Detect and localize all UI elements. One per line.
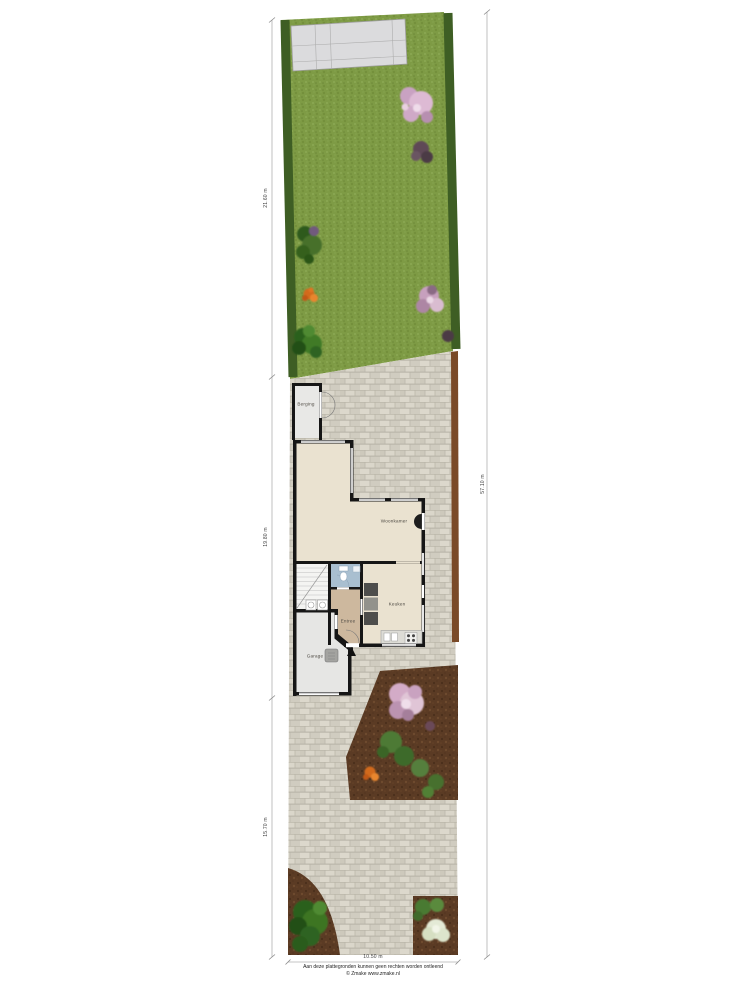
- dimension-plot-width: 10.50 m: [363, 954, 382, 960]
- site-plan-drawing: [0, 0, 750, 1000]
- berging-floor: [295, 385, 319, 438]
- berging-door: [319, 392, 321, 418]
- entree-kitchen-door: [361, 599, 363, 615]
- site-plan-canvas: Berging Woonkamer Keuken Entree Garage 2…: [0, 0, 750, 1000]
- stove-icon: [405, 633, 417, 644]
- room-label-entree: Entree: [341, 619, 356, 624]
- utility-box: [325, 649, 338, 662]
- terrace-slabs: [291, 19, 407, 71]
- fence-right: [451, 351, 459, 642]
- living-room-side-door: [422, 513, 425, 530]
- dimension-total-depth: 57.10 m: [480, 474, 486, 493]
- dimension-garden-depth: 21.60 m: [263, 188, 269, 207]
- kitchen-opening: [396, 561, 420, 564]
- room-label-garage: Garage: [307, 654, 324, 659]
- front-door: [346, 643, 359, 647]
- footer-disclaimer: Aan deze plattegronden kunnen geen recht…: [303, 964, 443, 971]
- room-label-woonkamer: Woonkamer: [381, 519, 407, 524]
- room-label-keuken: Keuken: [389, 602, 406, 607]
- toilet-door: [337, 587, 349, 589]
- entree-garage-door: [335, 615, 338, 629]
- footer-credit: © Zmake www.zmake.nl: [303, 971, 443, 978]
- dimension-frontyard-depth: 15.70 m: [263, 817, 269, 836]
- dimension-house-depth: 19.80 m: [263, 527, 269, 546]
- footer: Aan deze plattegronden kunnen geen recht…: [303, 964, 443, 977]
- room-label-berging: Berging: [297, 402, 314, 407]
- hand-basin-icon: [353, 566, 360, 572]
